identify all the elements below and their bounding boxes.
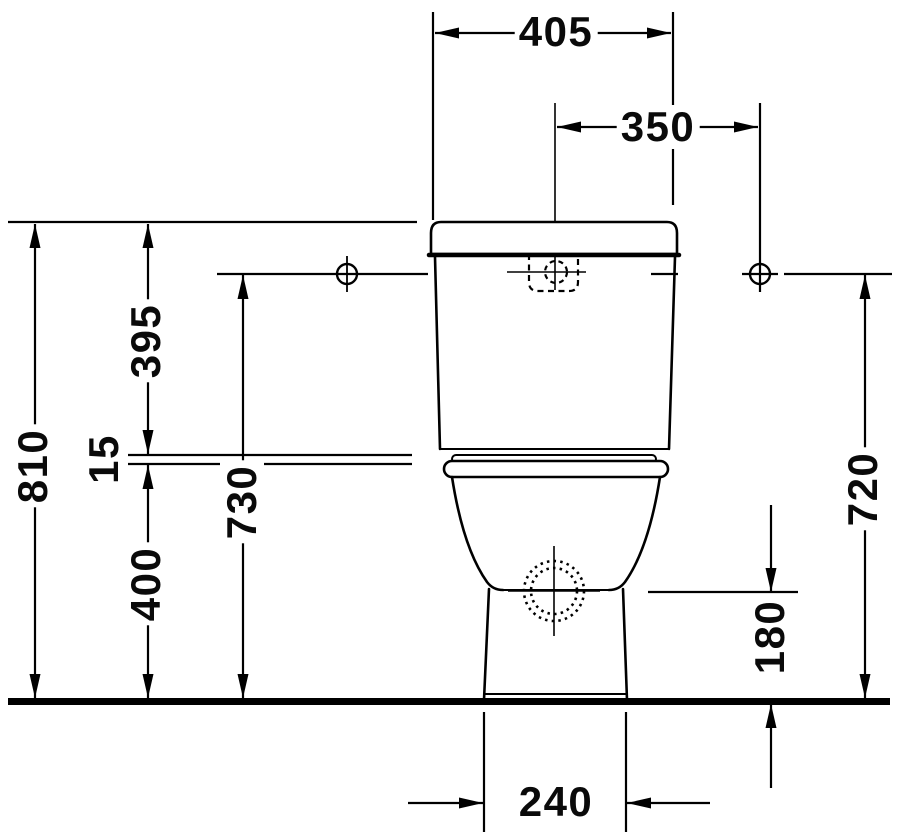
dim-label-730: 730 — [220, 461, 264, 544]
rim-band — [444, 461, 668, 477]
cistern-body-left — [435, 257, 440, 449]
dimension-lines — [8, 12, 892, 832]
dim-label-405: 405 — [515, 10, 598, 54]
drawing-canvas — [0, 0, 897, 838]
dim-label-720: 720 — [841, 448, 885, 531]
cistern-lid — [431, 222, 677, 254]
technical-drawing: 405 350 810 395 15 400 730 720 180 240 — [0, 0, 897, 838]
dim-label-180: 180 — [748, 596, 792, 679]
dim-label-400: 400 — [124, 543, 168, 626]
pedestal-right — [623, 589, 627, 700]
dim-label-15: 15 — [82, 430, 126, 488]
hidden-details — [507, 254, 600, 636]
bowl-right — [609, 477, 660, 590]
bowl-left — [452, 477, 503, 590]
dim-label-810: 810 — [11, 425, 55, 508]
cistern-body-right — [669, 257, 675, 449]
dim-label-240: 240 — [515, 780, 598, 824]
dim-label-350: 350 — [617, 105, 700, 149]
dimension-arrowheads — [30, 28, 871, 809]
pedestal-left — [484, 589, 489, 700]
dim-label-395: 395 — [124, 300, 168, 383]
